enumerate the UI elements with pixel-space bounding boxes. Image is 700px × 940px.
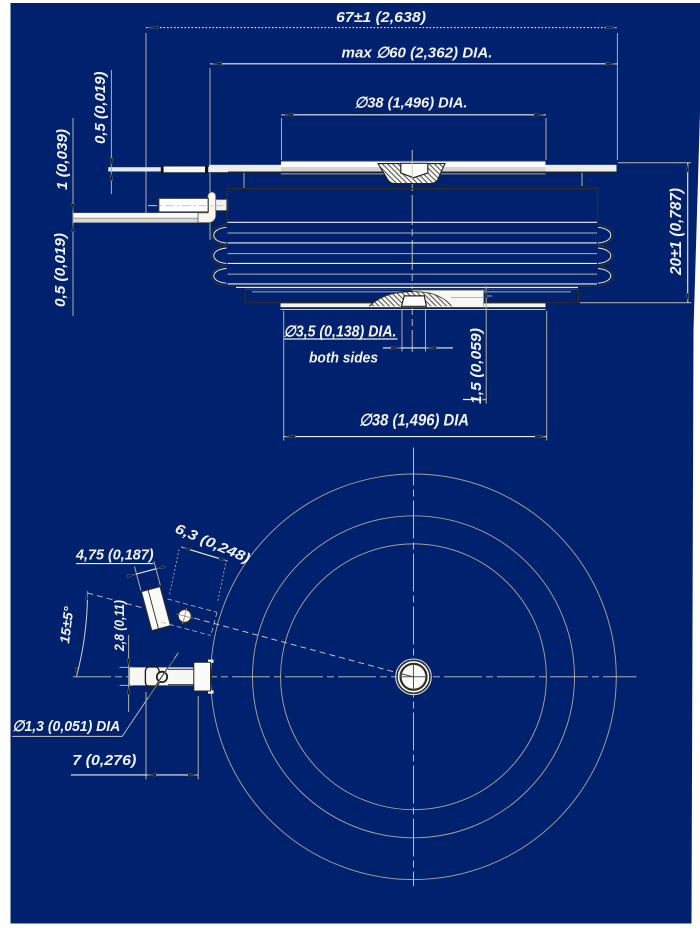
svg-text:0,5 (0,019): 0,5 (0,019) — [52, 233, 69, 307]
svg-text:∅38 (1,496) DIA.: ∅38 (1,496) DIA. — [355, 95, 468, 112]
svg-text:∅1,3 (0,051) DIA: ∅1,3 (0,051) DIA — [12, 718, 120, 735]
svg-text:4,75 (0,187): 4,75 (0,187) — [75, 547, 153, 564]
svg-text:∅3,5 (0,138) DIA.: ∅3,5 (0,138) DIA. — [284, 324, 397, 341]
svg-text:1 (0,039): 1 (0,039) — [54, 129, 71, 190]
svg-text:1,5 (0,059): 1,5 (0,059) — [468, 328, 485, 404]
svg-text:2,8 (0,11): 2,8 (0,11) — [111, 600, 127, 652]
svg-text:67±1 (2,638): 67±1 (2,638) — [336, 9, 426, 26]
svg-text:20±1 (0,787): 20±1 (0,787) — [668, 188, 685, 276]
svg-text:∅38 (1,496) DIA: ∅38 (1,496) DIA — [359, 412, 469, 430]
svg-text:0,5 (0,019): 0,5 (0,019) — [92, 71, 109, 144]
svg-text:both sides: both sides — [309, 350, 378, 367]
svg-text:max ∅60 (2,362) DIA.: max ∅60 (2,362) DIA. — [342, 45, 493, 62]
svg-text:7 (0,276): 7 (0,276) — [72, 752, 136, 769]
